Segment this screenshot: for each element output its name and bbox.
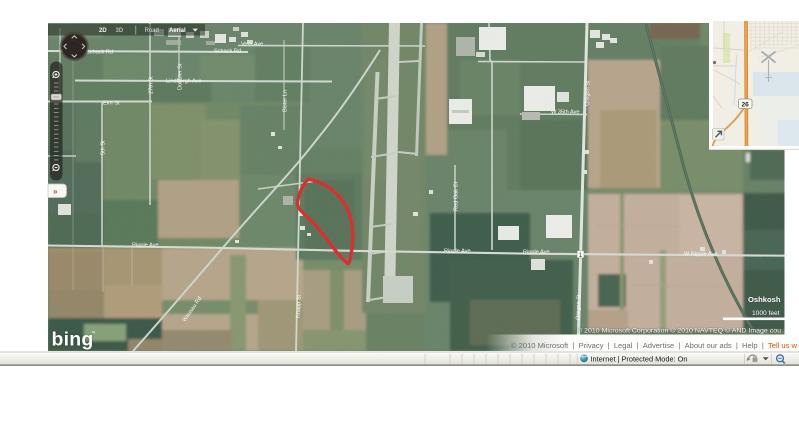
svg-text:Aerial: Aerial: [169, 28, 186, 34]
svg-text:»: »: [53, 187, 58, 196]
svg-text:bing: bing: [52, 329, 94, 351]
svg-text:Road: Road: [145, 28, 159, 34]
svg-text:™: ™: [91, 331, 96, 336]
svg-text:Internet | Protected Mode: On: Internet | Protected Mode: On: [591, 354, 688, 363]
svg-text:2D: 2D: [99, 28, 107, 34]
svg-text:© 2010 Microsoft | Privacy: © 2010 Microsoft | Privacy | Legal | Adv…: [511, 342, 798, 350]
svg-text:26: 26: [742, 101, 750, 108]
svg-text:3D: 3D: [116, 28, 124, 34]
